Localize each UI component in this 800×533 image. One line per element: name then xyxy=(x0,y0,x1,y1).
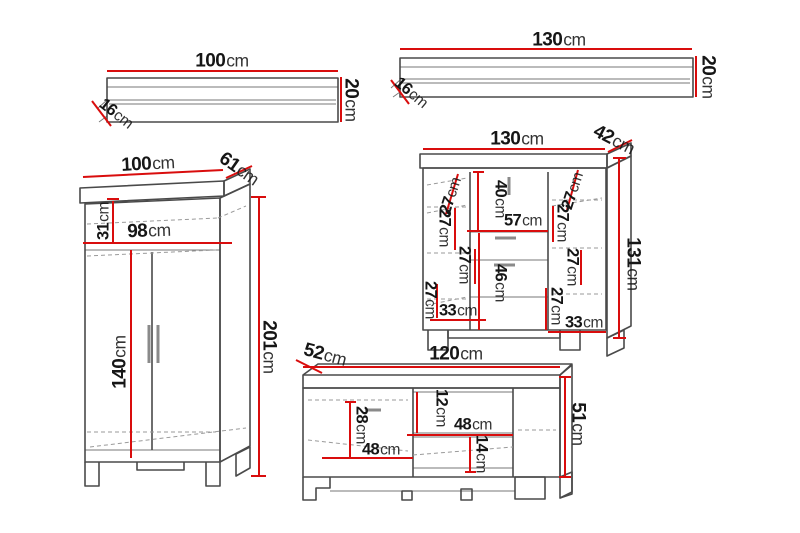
dim-sideboard-right-spacing-2: 27cm xyxy=(554,204,571,242)
dim-tv-stand-upper-shelf-height: 12cm xyxy=(433,389,450,427)
shelf-large-drawing xyxy=(391,49,696,104)
dim-sideboard-right-spacing-4: 27cm xyxy=(548,287,565,325)
dim-sideboard-right-spacing-3: 27cm xyxy=(564,248,581,286)
dim-shelf-small-height: 20cm xyxy=(342,78,361,121)
dim-sideboard-left-spacing-2: 27cm xyxy=(436,209,453,247)
dim-sideboard-center-width: 57cm xyxy=(504,213,542,230)
tv-stand-body xyxy=(303,388,560,477)
dim-wardrobe-height: 201cm xyxy=(260,320,279,373)
dim-sideboard-width: 130cm xyxy=(490,130,543,149)
dim-tv-stand-lower-shelf-height: 14cm xyxy=(473,435,490,473)
dim-tv-stand-height: 51cm xyxy=(569,402,588,445)
dim-tv-stand-niche-width: 48cm xyxy=(454,417,492,434)
dim-shelf-large-width: 130cm xyxy=(532,31,585,50)
dim-wardrobe-top-shelf-height: 31cm xyxy=(96,202,113,240)
dim-shelf-large-height: 20cm xyxy=(699,55,718,98)
dim-sideboard-lower-opening-height: 46cm xyxy=(492,264,509,302)
dim-shelf-small-width: 100cm xyxy=(195,52,248,71)
dim-sideboard-left-spacing-3: 27cm xyxy=(456,246,473,284)
dim-wardrobe-interior-width: 98cm xyxy=(127,221,171,242)
dim-sideboard-height: 131cm xyxy=(624,237,643,290)
dim-sideboard-left-compartment-width: 33cm xyxy=(439,303,477,320)
tv-stand-drawing xyxy=(296,360,572,500)
dim-wardrobe-width: 100cm xyxy=(121,153,175,175)
dim-tv-stand-left-opening-height: 28cm xyxy=(353,406,370,444)
dim-sideboard-left-spacing-4: 27cm xyxy=(422,281,439,319)
dim-tv-stand-width: 120cm xyxy=(429,345,482,364)
wardrobe-door-handles xyxy=(149,325,158,363)
dim-tv-stand-left-opening-width: 48cm xyxy=(362,442,400,459)
furniture-dimension-diagram: 100cm 20cm 16cm 130cm 20cm 16cm 100cm 61… xyxy=(0,0,800,533)
dim-wardrobe-door-height: 140cm xyxy=(111,335,130,388)
dim-sideboard-right-compartment-width: 33cm xyxy=(565,315,603,332)
